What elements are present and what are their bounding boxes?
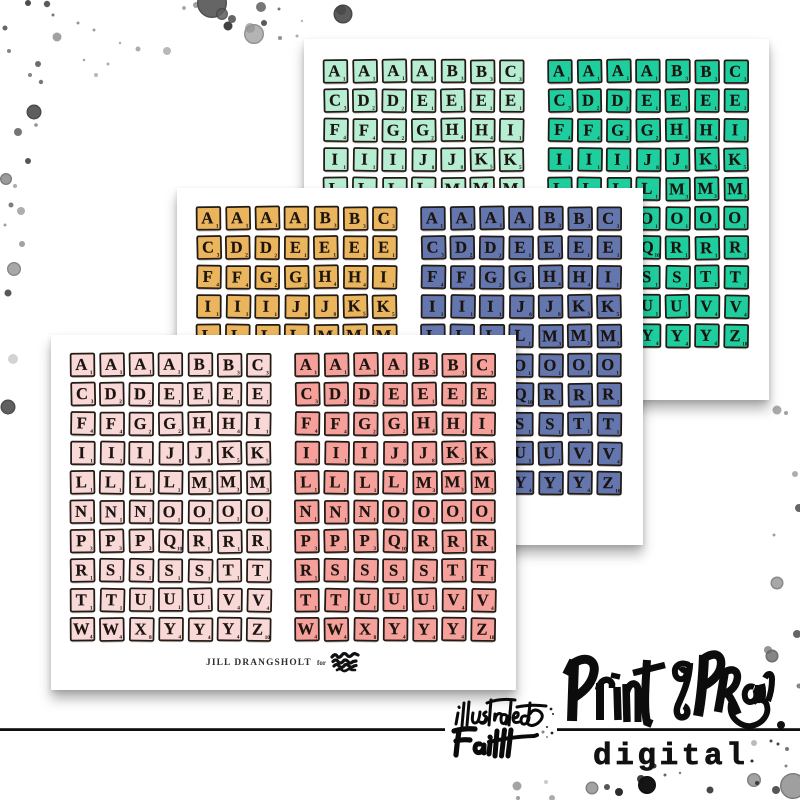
- svg-text:digital: digital: [593, 739, 748, 774]
- svg-text:JILL DRANGSHOLT: JILL DRANGSHOLT: [206, 658, 312, 668]
- svg-text:for: for: [317, 659, 326, 667]
